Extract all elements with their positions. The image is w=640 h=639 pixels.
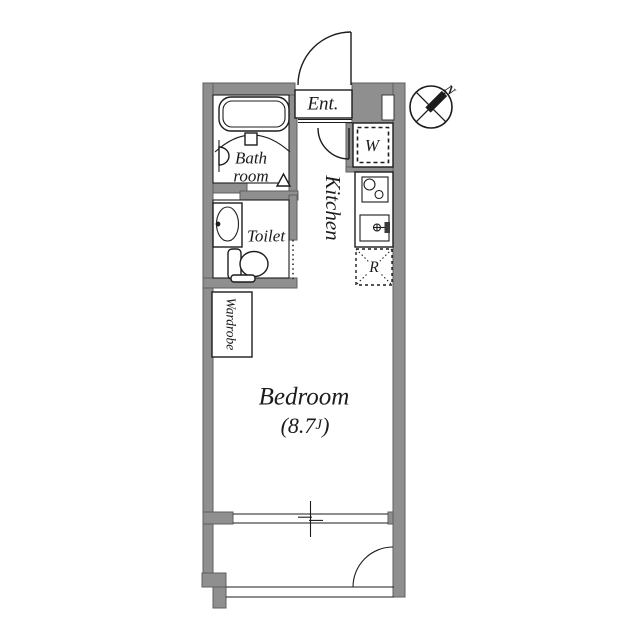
wall-right (393, 83, 405, 597)
wall-window-stub-right (388, 512, 393, 524)
bathtub-outer (219, 97, 289, 131)
bath-faucet-panel (245, 133, 257, 145)
bathroom-label-line1: Bath (235, 149, 267, 168)
wardrobe: Wardrobe (212, 292, 252, 357)
wall-toilet-right (289, 195, 297, 240)
toilet-base (231, 275, 255, 282)
entrance-label: Ent. (306, 94, 338, 115)
wall-step-foot (202, 573, 226, 587)
bathroom-label-line2: room (233, 167, 268, 186)
wardrobe-label: Wardrobe (224, 298, 239, 351)
refrigerator-label: R (368, 259, 379, 276)
kitchen-counter (355, 172, 393, 247)
toilet-label: Toilet (247, 227, 286, 246)
meter-box (382, 95, 394, 120)
bedroom-label: Bedroom (259, 384, 350, 411)
wall-washer-niche-bottom (346, 167, 393, 172)
kitchen-label: Kitchen (321, 174, 345, 240)
floor-plan-svg: Ent. Bath room Toilet Wardrobe (0, 0, 640, 639)
wall-step-leg (213, 587, 226, 608)
toilet-basin-faucet (216, 222, 221, 227)
wall-top-left (203, 83, 295, 95)
toilet-bowl (240, 252, 268, 277)
floor-plan-image: Ent. Bath room Toilet Wardrobe (0, 0, 640, 639)
wall-window-stub-left (203, 512, 233, 524)
bedroom-area-label: (8.7J) (281, 413, 330, 438)
sink-faucet-base (385, 222, 391, 233)
washer-label: W (365, 136, 381, 155)
